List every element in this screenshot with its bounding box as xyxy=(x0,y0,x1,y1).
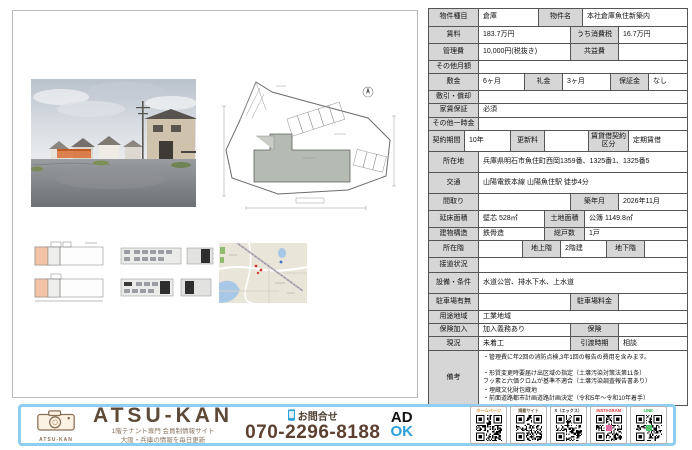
table-cell-label: 備考 xyxy=(429,351,479,405)
table-cell-value: 山陽電鉄本線 山陽魚住駅 徒歩4分 xyxy=(479,173,687,193)
table-row: 間取り築年月2026年11月 xyxy=(429,194,687,211)
table-cell-value xyxy=(619,44,687,60)
table-cell-value xyxy=(545,131,589,151)
table-cell-label: 所在階 xyxy=(429,241,479,257)
table-cell-value: 工業地域 xyxy=(479,311,687,323)
table-cell-label: 敷金 xyxy=(429,74,479,90)
site-plan-image xyxy=(216,76,404,218)
brand-block: ATSU-KAN 1階テナント専門 会員制情報サイト 大阪・兵庫の情報を毎日更新 xyxy=(93,405,233,444)
table-row: 接道状況 xyxy=(429,258,687,273)
phone-icon xyxy=(288,409,295,421)
table-row: 敷引・償却 xyxy=(429,91,687,104)
table-cell-value: 相談 xyxy=(619,337,687,350)
footer-bar: ATSU-KAN ATSU-KAN 1階テナント専門 会員制情報サイト 大阪・兵… xyxy=(18,404,676,446)
qr-code-image xyxy=(596,415,622,441)
table-cell-label: 所在地 xyxy=(429,152,479,172)
company-logo: ATSU-KAN xyxy=(27,408,85,443)
table-cell-value xyxy=(479,118,687,130)
table-cell-value xyxy=(479,294,571,310)
table-cell-label: 接道状況 xyxy=(429,258,479,272)
table-cell-value xyxy=(479,258,687,272)
table-cell-label: うち消費税 xyxy=(571,27,619,43)
table-cell-value xyxy=(619,324,687,336)
table-cell-value: 183.7万円 xyxy=(479,27,571,43)
table-cell-value: 必須 xyxy=(479,104,687,117)
table-row: 物件種目倉庫物件名本社倉庫魚住新築内 xyxy=(429,9,687,27)
qr-code-image xyxy=(556,415,582,441)
table-cell-value: なし xyxy=(649,74,687,90)
site-plan-drawing xyxy=(216,76,404,218)
qr-link-掲載サイト: 掲載サイト xyxy=(510,406,547,443)
contact-block: お問合せ 070-2296-8188 xyxy=(245,408,380,443)
table-cell-value: 1戸 xyxy=(585,228,687,240)
table-row: その他一時金 xyxy=(429,118,687,131)
qr-link-LINE: LINE xyxy=(630,406,667,443)
table-cell-value: 6ヶ月 xyxy=(479,74,525,90)
logo-caption: ATSU-KAN xyxy=(27,437,85,443)
table-cell-value: 未着工 xyxy=(479,337,571,350)
table-cell-label: 家賃保証 xyxy=(429,104,479,117)
table-cell-label: 契約期間 xyxy=(429,131,465,151)
brand-title: ATSU-KAN xyxy=(93,405,233,426)
qr-label: INSTAGRAM xyxy=(596,409,621,415)
qr-code-image xyxy=(636,415,662,441)
table-cell-label: 駐車場有無 xyxy=(429,294,479,310)
contact-label: お問合せ xyxy=(298,408,338,423)
ok-text: OK xyxy=(391,425,414,439)
table-cell-label: 礼金 xyxy=(525,74,563,90)
table-cell-label: 設備・条件 xyxy=(429,273,479,293)
floor-plan-image xyxy=(25,241,223,305)
qr-link-ホームページ: ホームページ xyxy=(470,406,507,443)
table-cell-value: 3ヶ月 xyxy=(563,74,611,90)
table-cell-value: 2階建 xyxy=(561,241,607,257)
media-panel xyxy=(12,10,418,398)
table-row: 保険加入加入義務あり保険 xyxy=(429,324,687,337)
qr-code-image xyxy=(516,415,542,441)
table-cell-label: 建物構造 xyxy=(429,228,479,240)
qr-code-image xyxy=(476,415,502,441)
property-flyer-page: { "colors": { "label_bg": "#d6d6d6", "fo… xyxy=(0,0,692,450)
table-cell-label: 現況 xyxy=(429,337,479,350)
brand-tagline-2: 大阪・兵庫の情報を毎日更新 xyxy=(93,437,233,445)
table-row: 駐車場有無駐車場料金 xyxy=(429,294,687,311)
table-row: 敷金6ヶ月礼金3ヶ月保証金なし xyxy=(429,74,687,91)
table-cell-value: 10年 xyxy=(465,131,511,151)
qr-label: ホームページ xyxy=(476,409,501,415)
brand-tagline-1: 1階テナント専門 会員制情報サイト xyxy=(93,428,233,436)
ad-ok-badge: AD OK xyxy=(391,411,414,440)
table-cell-value: 2026年11月 xyxy=(619,194,687,210)
table-cell-label: 保証金 xyxy=(611,74,649,90)
property-photo xyxy=(31,79,196,207)
table-cell-label: 共益費 xyxy=(571,44,619,60)
table-row: 交通山陽電鉄本線 山陽魚住駅 徒歩4分 xyxy=(429,173,687,194)
table-cell-label: 交通 xyxy=(429,173,479,193)
location-map-image xyxy=(219,243,307,303)
table-row: 建物構造鉄骨造総戸数1戸 xyxy=(429,228,687,241)
table-cell-value xyxy=(479,91,687,103)
table-cell-value: 16.7万円 xyxy=(619,27,687,43)
table-cell-label: 保険加入 xyxy=(429,324,479,336)
table-row: 所在階地上階2階建地下階 xyxy=(429,241,687,258)
qr-strip: ホームページ掲載サイトX（エックス）INSTAGRAMLINE xyxy=(470,406,667,443)
table-cell-value: 加入義務あり xyxy=(479,324,571,336)
table-cell-value: 壁芯 528㎡ xyxy=(479,211,545,227)
table-cell-label: 用途地域 xyxy=(429,311,479,323)
table-cell-label: 駐車場料金 xyxy=(571,294,619,310)
table-cell-label: 物件種目 xyxy=(429,9,479,26)
table-row: 賃料183.7万円うち消費税16.7万円 xyxy=(429,27,687,44)
table-row: その他月額 xyxy=(429,61,687,74)
camera-icon xyxy=(36,408,76,432)
table-cell-label: 敷引・償却 xyxy=(429,91,479,103)
qr-link-INSTAGRAM: INSTAGRAM xyxy=(590,406,627,443)
table-cell-value: ・管理費に年2回の消防点検,3年1回の報告の費用を含みます。 ・形質変更時要届け… xyxy=(479,351,687,405)
table-row: 管理費10,000円(税抜き)共益費 xyxy=(429,44,687,61)
floor-plan-drawing xyxy=(25,241,223,305)
table-row: 所在地兵庫県明石市魚住町西岡1359番、1325番1、1325番5 xyxy=(429,152,687,173)
table-cell-value: 兵庫県明石市魚住町西岡1359番、1325番1、1325番5 xyxy=(479,152,687,172)
location-map xyxy=(219,243,307,303)
table-cell-label: 管理費 xyxy=(429,44,479,60)
table-cell-value: 水道公営、排水下水、上水道 xyxy=(479,273,687,293)
table-row: 設備・条件水道公営、排水下水、上水道 xyxy=(429,273,687,294)
table-cell-value: 鉄骨造 xyxy=(479,228,545,240)
table-cell-value: 定期賃借 xyxy=(629,131,687,151)
table-cell-label: 更新料 xyxy=(511,131,545,151)
table-cell-label: 賃貸借契約区分 xyxy=(589,131,629,151)
table-cell-value: 本社倉庫魚住新築内 xyxy=(583,9,687,26)
table-cell-label: 総戸数 xyxy=(545,228,585,240)
table-cell-value: 10,000円(税抜き) xyxy=(479,44,571,60)
table-cell-label: その他月額 xyxy=(429,61,479,73)
table-row: 延床面積壁芯 528㎡土地面積公簿 1149.8㎡ xyxy=(429,211,687,228)
table-row: 用途地域工業地域 xyxy=(429,311,687,324)
table-cell-value xyxy=(479,241,523,257)
table-cell-label: 保険 xyxy=(571,324,619,336)
contact-phone-number: 070-2296-8188 xyxy=(245,423,380,443)
qr-link-X（エックス）: X（エックス） xyxy=(550,406,587,443)
qr-label: 掲載サイト xyxy=(518,409,539,415)
table-cell-value xyxy=(479,194,571,210)
table-cell-label: 引渡時期 xyxy=(571,337,619,350)
table-cell-value xyxy=(619,294,687,310)
table-row: 現況未着工引渡時期相談 xyxy=(429,337,687,351)
table-cell-label: 賃料 xyxy=(429,27,479,43)
table-cell-label: 土地面積 xyxy=(545,211,585,227)
table-cell-value: 倉庫 xyxy=(479,9,539,26)
table-cell-label: 物件名 xyxy=(539,9,583,26)
qr-label: X（エックス） xyxy=(555,409,582,415)
table-cell-value xyxy=(645,241,687,257)
table-cell-label: その他一時金 xyxy=(429,118,479,130)
table-cell-value: 公簿 1149.8㎡ xyxy=(585,211,687,227)
qr-label: LINE xyxy=(644,409,653,415)
table-row: 家賃保証必須 xyxy=(429,104,687,118)
table-cell-label: 築年月 xyxy=(571,194,619,210)
table-cell-label: 地下階 xyxy=(607,241,645,257)
table-cell-label: 間取り xyxy=(429,194,479,210)
table-cell-label: 地上階 xyxy=(523,241,561,257)
property-photo-image xyxy=(31,79,196,207)
table-row: 備考・管理費に年2回の消防点検,3年1回の報告の費用を含みます。 ・形質変更時要… xyxy=(429,351,687,405)
table-row: 契約期間10年更新料賃貸借契約区分定期賃借 xyxy=(429,131,687,152)
table-cell-value xyxy=(479,61,687,73)
table-cell-label: 延床面積 xyxy=(429,211,479,227)
property-table: 物件種目倉庫物件名本社倉庫魚住新築内賃料183.7万円うち消費税16.7万円管理… xyxy=(428,8,688,406)
